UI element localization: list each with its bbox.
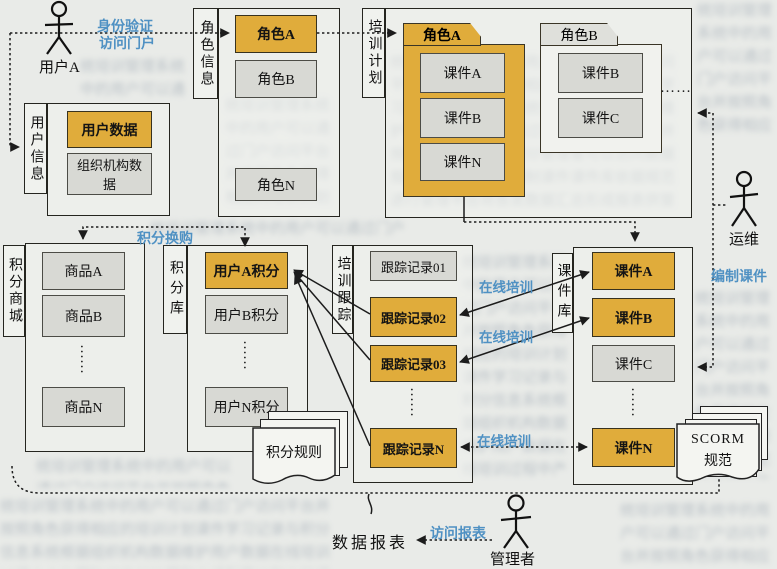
training-tracking-tab: 培训跟踪 [332,245,353,334]
scorm-label-line2: 规范 [676,450,760,470]
points-mall-tab: 积分商城 [3,245,25,337]
lib-courseware-a: 课件A [592,252,675,290]
folder-role-b-tab: 角色B [540,23,618,46]
scanned-diagram-page: 统培训管理系统中的用户可以通过门户访问平台并按照角色获得相应的培训计划课件学习记… [0,0,777,569]
online-training-label-2: 在线培训 [479,326,533,346]
lib-courseware-c: 课件C [592,345,675,382]
more-points-ellipsis: …… [239,340,256,370]
points-rules-label: 积分规则 [252,442,336,462]
folder-a-courseware-b: 课件B [420,98,505,138]
more-folders-ellipsis: …… [660,80,692,97]
points-exchange-label: 积分换购 [137,228,193,248]
user-a-label: 用户A [39,56,80,77]
user-info-tab: 用户信息 [24,103,47,194]
user-b-points-item: 用户B积分 [205,295,288,334]
more-records-ellipsis: …… [406,387,423,417]
more-courseware-ellipsis: …… [627,387,644,417]
person-icon [496,494,536,550]
user-a-actor [40,0,78,61]
access-report-label: 访问报表 [430,523,486,543]
points-rules-document: 积分规则 [252,427,336,487]
person-icon [726,170,764,228]
user-data-item: 用户数据 [67,111,152,148]
more-goods-ellipsis: …… [76,344,93,374]
page-bleed-through: 统培训管理系统中的用户可以通过门户访问平台并按照角色获得相应的培训计划课件学习记… [80,56,198,102]
wire-report-brace-tip [368,494,371,514]
user-a-points-item: 用户A积分 [205,252,288,289]
online-training-label-3: 在线培训 [477,430,531,450]
goods-n-item: 商品N [42,387,125,427]
tracking-record-03: 跟踪记录03 [370,345,457,382]
role-b-item: 角色B [235,60,317,98]
role-a-item: 角色A [235,15,317,53]
lib-courseware-b: 课件B [592,298,675,337]
wire-user-to-userinfo [10,33,19,147]
wire-ops-maintains [698,113,713,367]
scorm-label-line1: SCORM [676,432,760,448]
page-bleed-through: 统培训管理系统中的用户可以通过门户访问平台并按照角色获得相应的培训计划课件学习记… [620,500,777,569]
auth-label-line2: 访问门户 [99,33,155,53]
ops-label: 运维 [729,228,759,249]
tracking-record-02: 跟踪记录02 [370,297,457,337]
folder-a-courseware-a: 课件A [420,53,505,93]
folder-a-courseware-n: 课件N [420,143,505,181]
wire-folder-to-lib [464,222,635,241]
folder-b-courseware-b: 课件B [558,53,643,93]
role-n-item: 角色N [235,168,317,201]
points-bank-tab: 积分库 [163,245,187,334]
page-bleed-through: 统培训管理系统中的用户可以通过门户访问平台并按照角色获得相应的培训计划课件学习记… [36,456,236,488]
folder-b-courseware-c: 课件C [558,98,643,138]
online-training-label-1: 在线培训 [479,276,533,296]
lib-courseware-n: 课件N [592,428,675,467]
manager-label: 管理者 [490,548,535,569]
compile-courseware-label: 编制课件 [711,266,767,286]
manager-actor [496,494,536,555]
courseware-lib-tab: 课件库 [552,253,573,333]
data-report-label: 数据报表 [332,529,408,553]
tracking-record-01: 跟踪记录01 [370,251,457,281]
page-bleed-through: 统培训管理系统中的用户可以通过门户访问平台并按照角色获得相应的培训计划课件学习记… [697,0,777,132]
goods-a-item: 商品A [42,252,125,290]
goods-b-item: 商品B [42,295,125,337]
training-plan-tab: 培训计划 [362,8,385,98]
org-data-item: 组织机构数据 [67,153,152,195]
person-icon [40,0,78,56]
role-info-tab: 角色信息 [193,8,218,99]
ops-actor [726,170,764,233]
scorm-document: SCORM 规范 [676,423,760,485]
folder-role-a-tab: 角色A [403,23,481,46]
tracking-record-n: 跟踪记录N [370,428,457,468]
page-bleed-through: 统培训管理系统中的用户可以通过门户访问平台并按照角色获得相应的培训计划课件学习记… [0,496,335,569]
